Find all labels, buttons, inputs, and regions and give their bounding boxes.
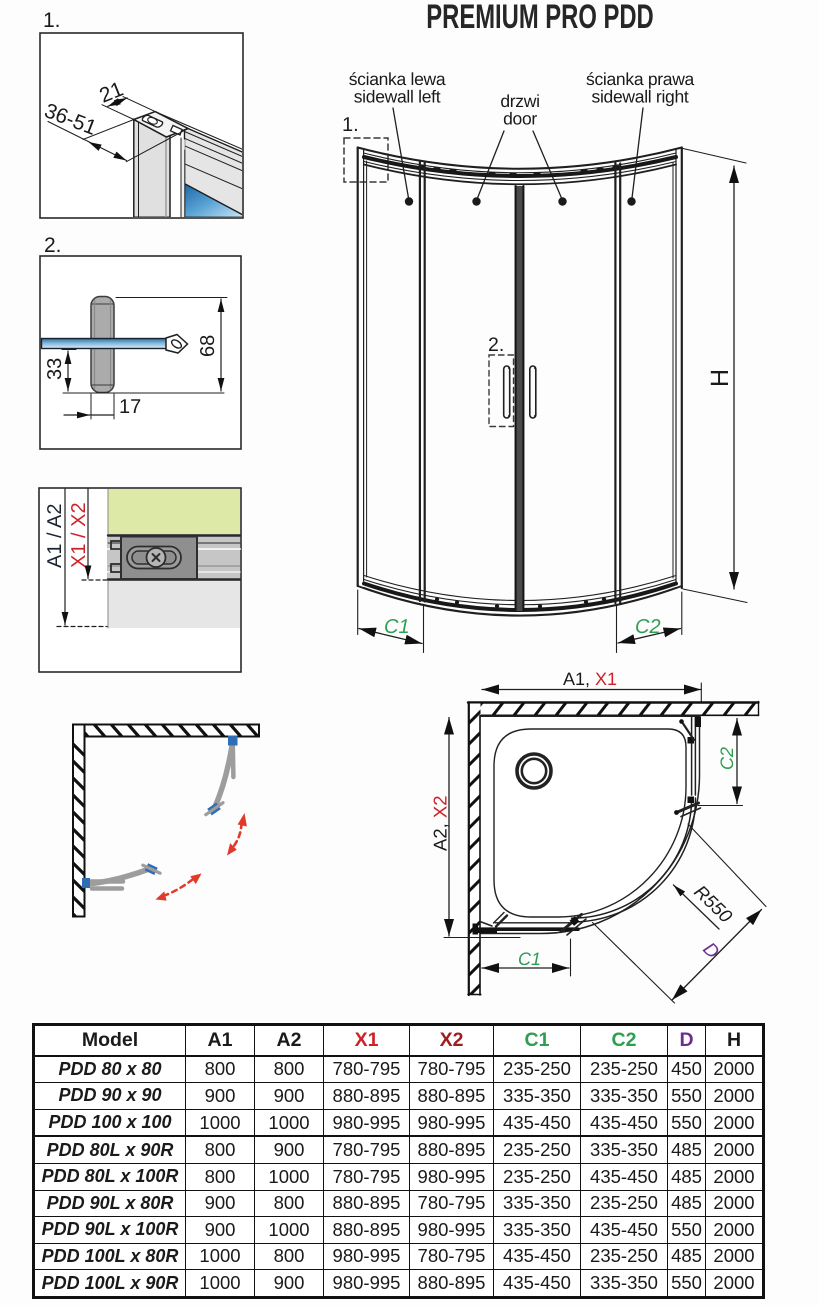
svg-text:D: D: [698, 939, 723, 964]
svg-text:68: 68: [197, 335, 219, 357]
svg-text:2.: 2.: [44, 234, 62, 257]
svg-text:sidewall left: sidewall left: [354, 87, 441, 107]
svg-text:A1, X1: A1, X1: [563, 669, 617, 689]
svg-text:A1 / A2: A1 / A2: [44, 504, 66, 569]
svg-text:door: door: [503, 109, 537, 129]
svg-text:C1: C1: [384, 616, 410, 638]
svg-text:33: 33: [44, 358, 66, 380]
svg-text:C1: C1: [518, 949, 541, 969]
svg-text:sidewall right: sidewall right: [592, 87, 689, 107]
svg-text:2.: 2.: [488, 334, 504, 356]
svg-text:17: 17: [119, 396, 141, 418]
svg-text:C2: C2: [635, 616, 661, 638]
svg-text:1.: 1.: [342, 114, 359, 136]
svg-text:R550: R550: [690, 881, 737, 927]
svg-text:H: H: [706, 369, 734, 387]
svg-text:X1 / X2: X1 / X2: [68, 502, 90, 568]
svg-text:A2, X2: A2, X2: [430, 795, 451, 851]
svg-text:C2: C2: [717, 747, 737, 770]
svg-text:1.: 1.: [43, 9, 61, 32]
